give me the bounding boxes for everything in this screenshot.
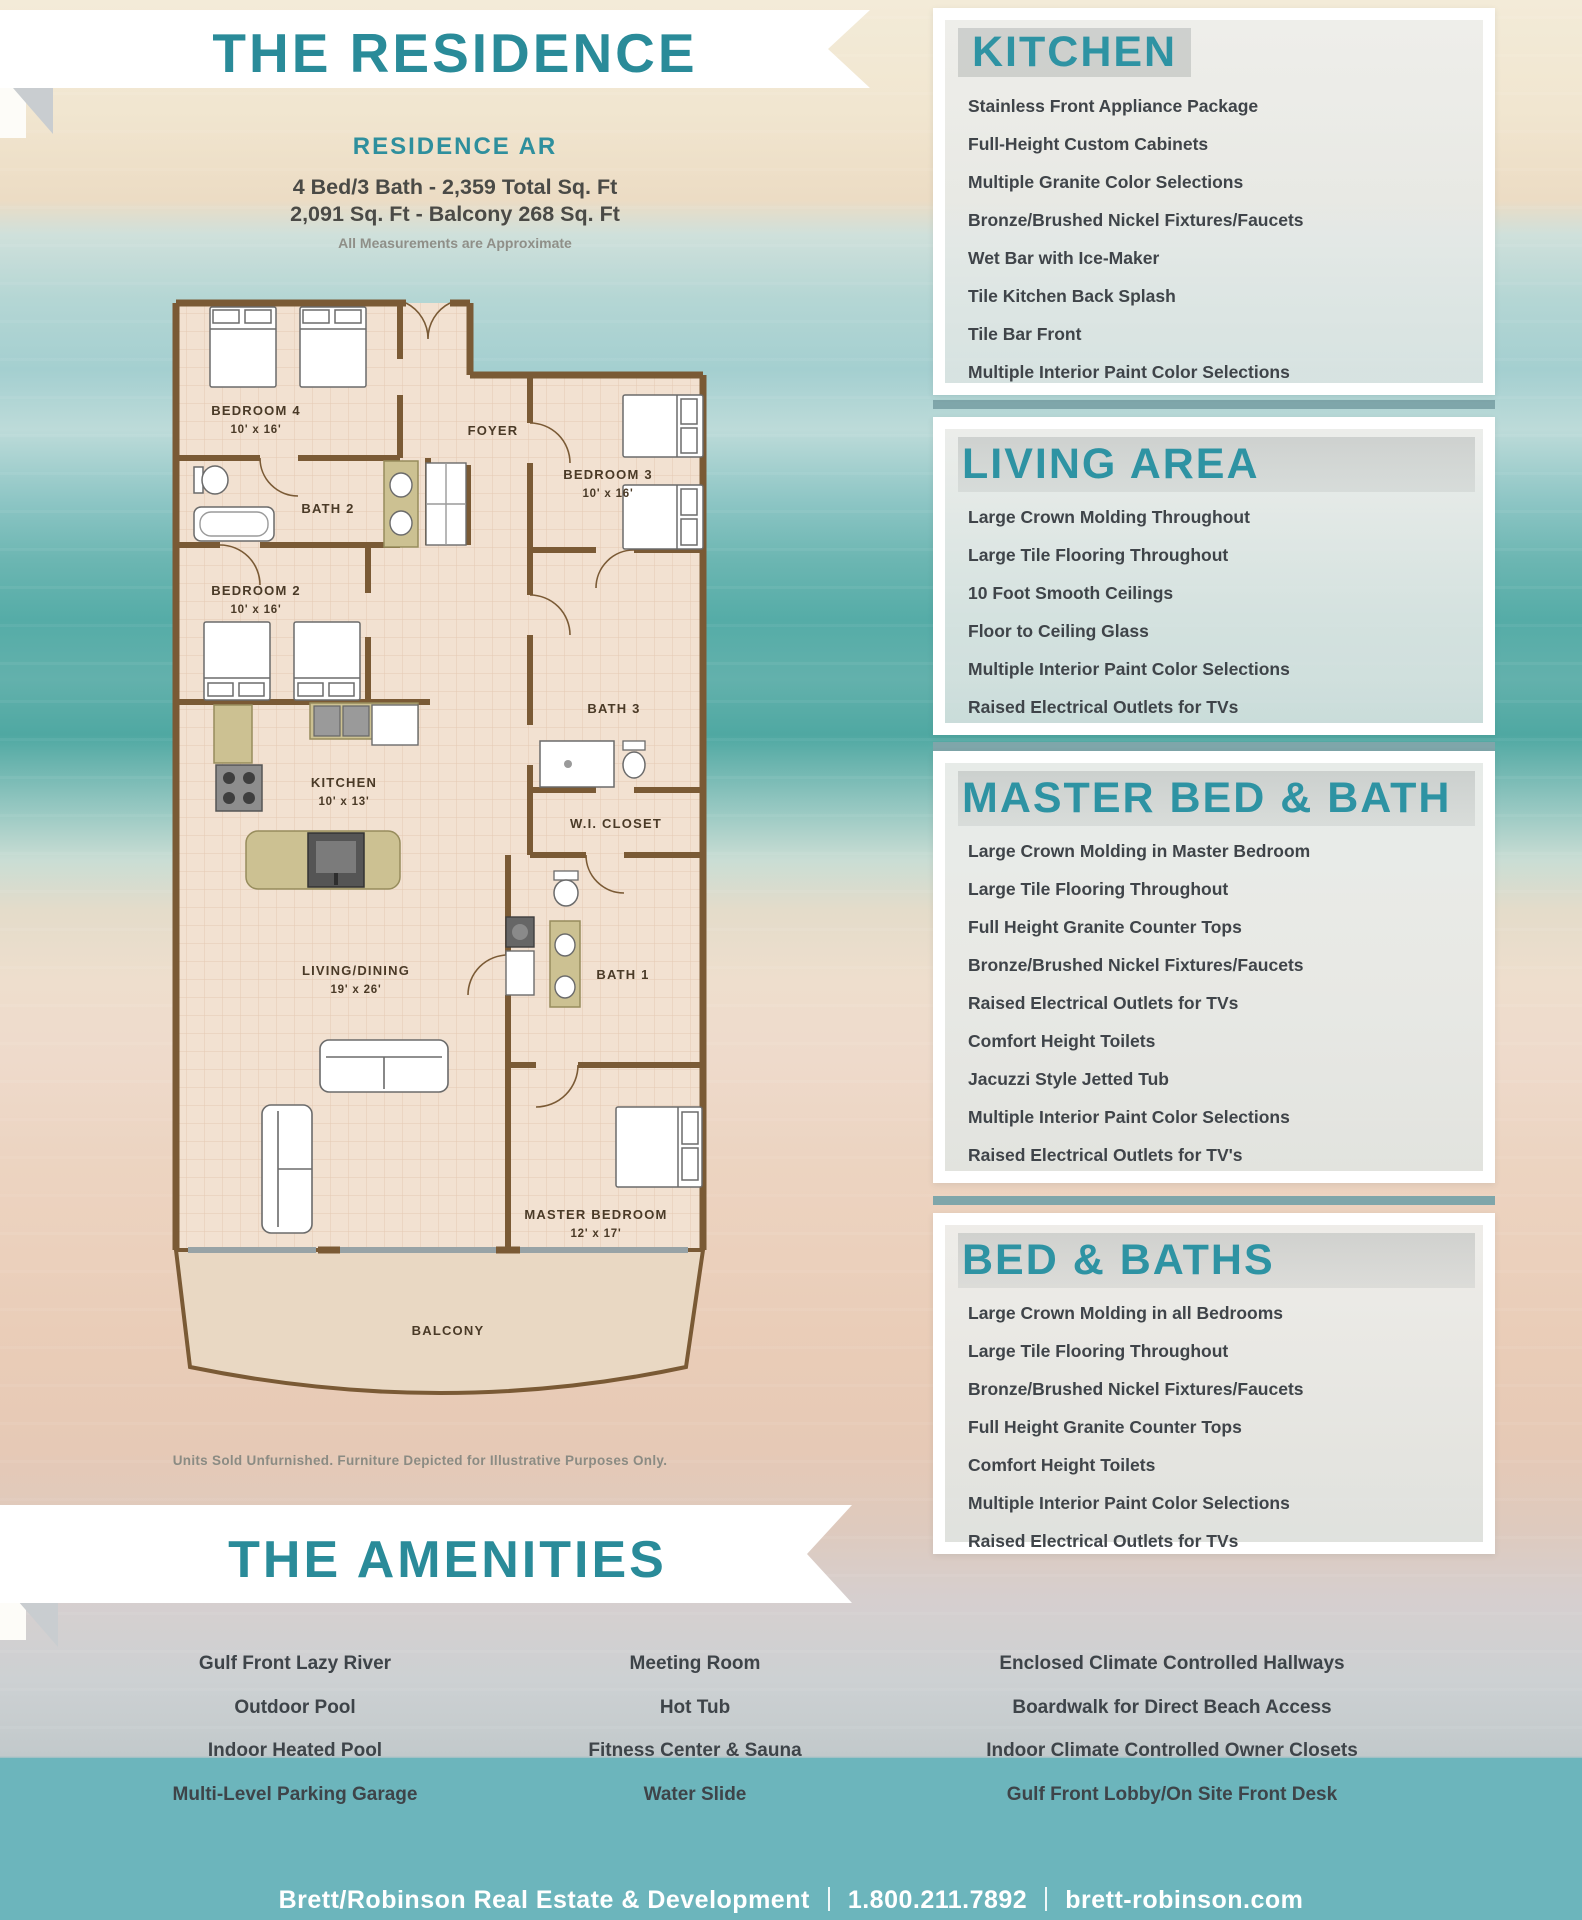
amenity-item: Meeting Room	[515, 1642, 875, 1686]
room-label: KITCHEN	[311, 775, 377, 790]
feature-item: Raised Electrical Outlets for TVs	[968, 984, 1469, 1022]
room-label: FOYER	[468, 423, 519, 438]
feature-item: Multiple Interior Paint Color Selections	[968, 650, 1469, 688]
room-label: BEDROOM 2	[211, 583, 301, 598]
feature-item: Multiple Granite Color Selections	[968, 163, 1469, 201]
panel-bed-baths-content: BED & BATHS Large Crown Molding in all B…	[945, 1225, 1483, 1560]
room-label: MASTER BEDROOM	[524, 1207, 667, 1222]
feature-item: 10 Foot Smooth Ceilings	[968, 574, 1469, 612]
panel-kitchen-content: KITCHEN Stainless Front Appliance Packag…	[945, 20, 1483, 391]
feature-item: Large Crown Molding in Master Bedroom	[968, 832, 1469, 870]
panel-bed-baths-title: BED & BATHS	[958, 1233, 1475, 1288]
feature-item: Large Tile Flooring Throughout	[968, 536, 1469, 574]
spec-line-2: 2,091 Sq. Ft - Balcony 268 Sq. Ft	[190, 201, 720, 228]
residence-name: RESIDENCE AR	[190, 133, 720, 161]
room-label: BEDROOM 4	[211, 403, 301, 418]
room-label: BATH 3	[587, 701, 640, 716]
feature-item: Multiple Interior Paint Color Selections	[968, 1098, 1469, 1136]
feature-item: Full-Height Custom Cabinets	[968, 125, 1469, 163]
feature-item: Multiple Interior Paint Color Selections	[968, 1484, 1469, 1522]
panel-living-area-content: LIVING AREA Large Crown Molding Througho…	[945, 429, 1483, 726]
room-label: BALCONY	[412, 1323, 485, 1338]
residence-specs: RESIDENCE AR 4 Bed/3 Bath - 2,359 Total …	[190, 133, 720, 251]
feature-item: Bronze/Brushed Nickel Fixtures/Faucets	[968, 1370, 1469, 1408]
feature-item: Raised Electrical Outlets for TV's	[968, 1136, 1469, 1174]
balcony-floor	[176, 1250, 703, 1393]
feature-item: Wet Bar with Ice-Maker	[968, 239, 1469, 277]
feature-item: Multiple Interior Paint Color Selections	[968, 353, 1469, 391]
room-label: LIVING/DINING	[302, 963, 410, 978]
feature-item: Full Height Granite Counter Tops	[968, 908, 1469, 946]
amenities-column-3: Enclosed Climate Controlled HallwaysBoar…	[957, 1642, 1387, 1816]
footer-company: Brett/Robinson Real Estate & Development	[279, 1886, 810, 1914]
panel-master-bed-bath: MASTER BED & BATH Large Crown Molding in…	[933, 751, 1495, 1183]
feature-item: Raised Electrical Outlets for TVs	[968, 688, 1469, 726]
footer-phone: 1.800.211.7892	[848, 1886, 1027, 1914]
spec-line-1: 4 Bed/3 Bath - 2,359 Total Sq. Ft	[190, 174, 720, 201]
feature-item: Tile Kitchen Back Splash	[968, 277, 1469, 315]
panel-kitchen-list: Stainless Front Appliance PackageFull-He…	[968, 87, 1469, 391]
amenity-item: Indoor Climate Controlled Owner Closets	[957, 1729, 1387, 1773]
panel-divider	[933, 1196, 1495, 1205]
amenity-item: Fitness Center & Sauna	[515, 1729, 875, 1773]
panel-living-area-list: Large Crown Molding ThroughoutLarge Tile…	[968, 498, 1469, 726]
room-label: W.I. CLOSET	[570, 816, 662, 831]
amenity-item: Boardwalk for Direct Beach Access	[957, 1686, 1387, 1730]
room-label: BATH 1	[596, 967, 649, 982]
amenity-item: Multi-Level Parking Garage	[115, 1773, 475, 1817]
feature-item: Large Tile Flooring Throughout	[968, 1332, 1469, 1370]
panel-bed-baths: BED & BATHS Large Crown Molding in all B…	[933, 1213, 1495, 1554]
bed-icon-master	[616, 1107, 702, 1187]
room-dims: 10' x 16'	[230, 604, 281, 616]
feature-item: Bronze/Brushed Nickel Fixtures/Faucets	[968, 201, 1469, 239]
feature-item: Large Crown Molding in all Bedrooms	[968, 1294, 1469, 1332]
panel-master-bed-bath-content: MASTER BED & BATH Large Crown Molding in…	[945, 763, 1483, 1174]
amenity-item: Hot Tub	[515, 1686, 875, 1730]
room-label: BATH 2	[301, 501, 354, 516]
room-dims: 12' x 17'	[570, 1228, 621, 1240]
room-dims: 10' x 16'	[230, 424, 281, 436]
amenities-column-1: Gulf Front Lazy RiverOutdoor PoolIndoor …	[115, 1642, 475, 1816]
panel-master-bed-bath-title: MASTER BED & BATH	[958, 771, 1475, 826]
furniture-disclaimer: Units Sold Unfurnished. Furniture Depict…	[120, 1453, 720, 1468]
measurements-note: All Measurements are Approximate	[190, 235, 720, 251]
floor-plan: BEDROOM 4 10' x 16' FOYER BEDROOM 3 10' …	[168, 295, 713, 1415]
room-label: BEDROOM 3	[563, 467, 653, 482]
panel-kitchen: KITCHEN Stainless Front Appliance Packag…	[933, 8, 1495, 395]
feature-item: Raised Electrical Outlets for TVs	[968, 1522, 1469, 1560]
footer: Brett/Robinson Real Estate & Development…	[0, 1886, 1582, 1915]
panel-divider	[933, 400, 1495, 409]
feature-item: Bronze/Brushed Nickel Fixtures/Faucets	[968, 946, 1469, 984]
amenities-column-2: Meeting RoomHot TubFitness Center & Saun…	[515, 1642, 875, 1816]
page-title: THE RESIDENCE	[150, 21, 760, 85]
amenity-item: Indoor Heated Pool	[115, 1729, 475, 1773]
panel-divider	[933, 742, 1495, 751]
panel-kitchen-title: KITCHEN	[958, 28, 1191, 77]
panel-bed-baths-list: Large Crown Molding in all BedroomsLarge…	[968, 1294, 1469, 1560]
amenity-item: Enclosed Climate Controlled Hallways	[957, 1642, 1387, 1686]
room-dims: 19' x 26'	[330, 984, 381, 996]
panel-living-area: LIVING AREA Large Crown Molding Througho…	[933, 417, 1495, 735]
feature-item: Jacuzzi Style Jetted Tub	[968, 1060, 1469, 1098]
feature-item: Large Tile Flooring Throughout	[968, 870, 1469, 908]
amenity-item: Gulf Front Lazy River	[115, 1642, 475, 1686]
feature-item: Comfort Height Toilets	[968, 1446, 1469, 1484]
brochure-page: THE RESIDENCE RESIDENCE AR 4 Bed/3 Bath …	[0, 0, 1582, 1920]
feature-item: Floor to Ceiling Glass	[968, 612, 1469, 650]
amenities-title: THE AMENITIES	[165, 1530, 730, 1590]
feature-item: Stainless Front Appliance Package	[968, 87, 1469, 125]
footer-separator	[1045, 1887, 1047, 1911]
amenity-item: Water Slide	[515, 1773, 875, 1817]
feature-item: Comfort Height Toilets	[968, 1022, 1469, 1060]
feature-item: Tile Bar Front	[968, 315, 1469, 353]
feature-item: Large Crown Molding Throughout	[968, 498, 1469, 536]
panel-master-bed-bath-list: Large Crown Molding in Master BedroomLar…	[968, 832, 1469, 1174]
room-dims: 10' x 13'	[318, 796, 369, 808]
footer-website: brett-robinson.com	[1065, 1886, 1303, 1914]
amenity-item: Gulf Front Lobby/On Site Front Desk	[957, 1773, 1387, 1817]
room-dims: 10' x 16'	[582, 488, 633, 500]
footer-separator	[828, 1887, 830, 1911]
panel-living-area-title: LIVING AREA	[958, 437, 1475, 492]
amenity-item: Outdoor Pool	[115, 1686, 475, 1730]
feature-item: Full Height Granite Counter Tops	[968, 1408, 1469, 1446]
